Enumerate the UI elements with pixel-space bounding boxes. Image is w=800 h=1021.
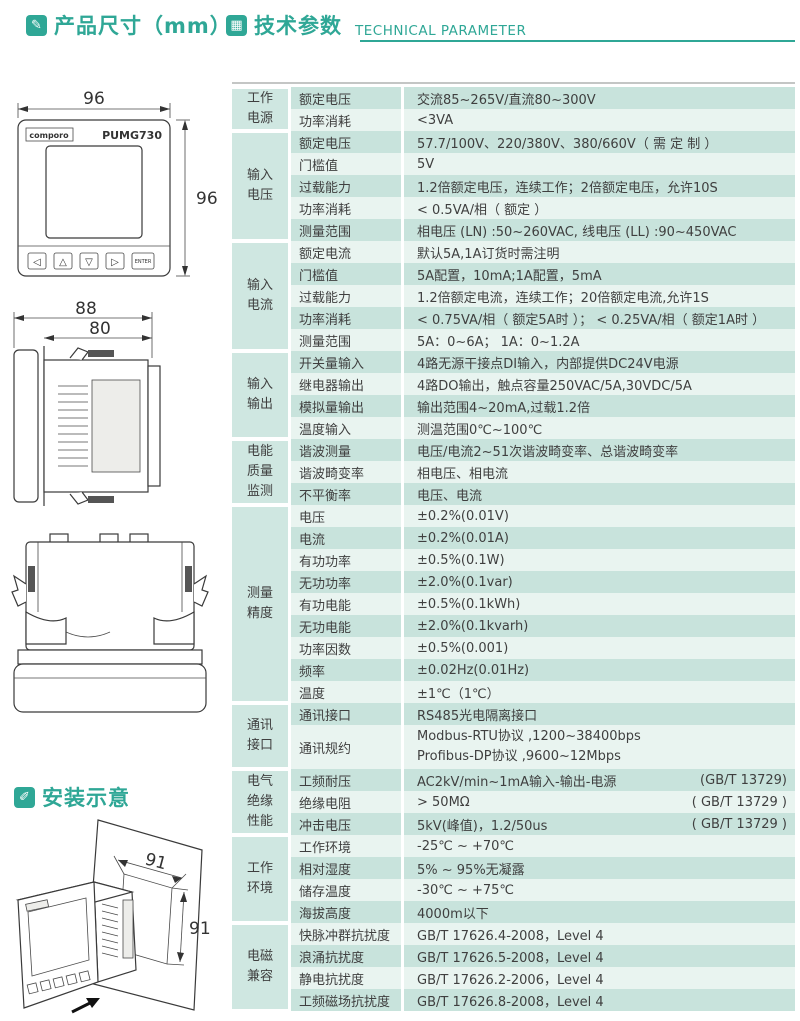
param-value: ±0.02Hz(0.01Hz) — [404, 659, 795, 681]
param-value: 4路无源干接点DI输入，内部提供DC24V电源 — [404, 351, 795, 373]
param-name: 功率消耗 — [291, 109, 401, 131]
param-name: 电压 — [291, 505, 401, 527]
group-cell: 工作环境 — [232, 835, 288, 923]
front-view-diagram: 96 comporo PUMG730 ◁ △ ▽ ▷ ENTER 96 — [0, 88, 228, 296]
group-label: 输入电流 — [247, 276, 274, 316]
header-rule — [360, 40, 795, 42]
param-name: 无功电能 — [291, 615, 401, 637]
param-value: 5% ~ 95%无凝露 — [404, 857, 795, 879]
param-value: ±2.0%(0.1kvarh) — [404, 615, 795, 637]
group-cell: 通讯接口 — [232, 703, 288, 769]
param-name: 工作环境 — [291, 835, 401, 857]
param-value: 相电压、相电流 — [404, 461, 795, 483]
param-value: ±0.5%(0.1kWh) — [404, 593, 795, 615]
param-value: GB/T 17626.4-2008，Level 4 — [404, 923, 795, 945]
param-value: 4路DO输出，触点容量250VAC/5A,30VDC/5A — [404, 373, 795, 395]
section-title: 技术参数 — [254, 10, 342, 40]
param-name: 冲击电压 — [291, 813, 401, 835]
param-value: ±0.2%(0.01A) — [404, 527, 795, 549]
param-value: 5kV(峰值)，1.2/50us( GB/T 13729 ) — [404, 813, 795, 835]
param-name: 海拔高度 — [291, 901, 401, 923]
table-body: 工作电源额定电压交流85~265V/直流80~300V功率消耗<3VA输入电压额… — [232, 87, 795, 1011]
param-name: 温度输入 — [291, 417, 401, 439]
param-value: ±1℃（1℃） — [404, 681, 795, 703]
table-group: 输入电压额定电压57.7/100V、220/380V、380/660V（ 需 定… — [232, 131, 795, 241]
param-note: ( GB/T 13729 ) — [692, 817, 795, 832]
key-enter-label: ENTER — [135, 259, 152, 265]
table-group: 工作环境工作环境-25℃ ~ +70℃相对湿度5% ~ 95%无凝露储存温度-3… — [232, 835, 795, 923]
param-name: 绝缘电阻 — [291, 791, 401, 813]
parameters-icon: ▦ — [226, 15, 247, 36]
param-value: GB/T 17626.5-2008，Level 4 — [404, 945, 795, 967]
table-group: 工作电源额定电压交流85~265V/直流80~300V功率消耗<3VA — [232, 87, 795, 131]
section-product-dimensions: ✎ 产品尺寸（mm） — [26, 10, 232, 40]
table-group: 电气绝缘性能工频耐压AC2kV/min~1mA输入-输出-电源(GB/T 137… — [232, 769, 795, 835]
param-name: 有功功率 — [291, 549, 401, 571]
section-installation: ✐ 安装示意 — [14, 782, 130, 812]
param-value: -30℃ ~ +75℃ — [404, 879, 795, 901]
group-label: 工作环境 — [247, 859, 274, 899]
param-name: 快脉冲群抗扰度 — [291, 923, 401, 945]
model-label: PUMG730 — [102, 129, 162, 142]
param-value: 交流85~265V/直流80~300V — [404, 87, 795, 109]
group-label: 输入输出 — [247, 375, 274, 415]
param-value: GB/T 17626.8-2008，Level 4 — [404, 989, 795, 1011]
group-cell: 输入电压 — [232, 131, 288, 241]
param-value: < 0.75VA/相（ 额定5A时 ）； < 0.25VA/相（ 额定1A时 ） — [404, 307, 795, 329]
param-name: 温度 — [291, 681, 401, 703]
group-cell: 工作电源 — [232, 87, 288, 131]
dim-cutout-height: 91 — [189, 919, 211, 939]
param-name: 储存温度 — [291, 879, 401, 901]
param-value: < 0.5VA/相（ 额定 ） — [404, 197, 795, 219]
group-cell: 测量精度 — [232, 505, 288, 703]
param-value: 输出范围4~20mA,过载1.2倍 — [404, 395, 795, 417]
group-label: 测量精度 — [247, 584, 274, 624]
param-value: 4000m以下 — [404, 901, 795, 923]
param-name: 无功功率 — [291, 571, 401, 593]
dim-side-body: 80 — [89, 319, 111, 339]
param-name: 模拟量输出 — [291, 395, 401, 417]
table-group: 输入电流额定电流默认5A,1A订货时需注明门槛值5A配置，10mA;1A配置，5… — [232, 241, 795, 351]
dim-front-width: 96 — [83, 89, 105, 109]
side-view-diagram: 88 80 — [0, 300, 228, 515]
param-name: 功率消耗 — [291, 197, 401, 219]
param-name: 额定电压 — [291, 87, 401, 109]
param-name: 测量范围 — [291, 329, 401, 351]
param-name: 功率因数 — [291, 637, 401, 659]
param-name: 静电抗扰度 — [291, 967, 401, 989]
dim-side-total: 88 — [75, 300, 97, 319]
param-name: 浪涌抗扰度 — [291, 945, 401, 967]
param-name: 有功电能 — [291, 593, 401, 615]
rear-view-diagram — [2, 520, 226, 745]
table-group: 测量精度电压±0.2%(0.01V)电流±0.2%(0.01A)有功功率±0.5… — [232, 505, 795, 703]
param-value: 1.2倍额定电流，连续工作；20倍额定电流,允许1S — [404, 285, 795, 307]
param-value: AC2kV/min~1mA输入-输出-电源(GB/T 13729) — [404, 769, 795, 791]
group-cell: 电气绝缘性能 — [232, 769, 288, 835]
param-name: 开关量输入 — [291, 351, 401, 373]
technical-parameter-table: 工作电源额定电压交流85~265V/直流80~300V功率消耗<3VA输入电压额… — [232, 82, 795, 1011]
param-name: 工频磁场抗扰度 — [291, 989, 401, 1011]
table-group: 电磁兼容快脉冲群抗扰度GB/T 17626.4-2008，Level 4浪涌抗扰… — [232, 923, 795, 1011]
param-name: 谐波畸变率 — [291, 461, 401, 483]
param-value: 默认5A,1A订货时需注明 — [404, 241, 795, 263]
key-left-icon: ◁ — [33, 257, 41, 268]
param-name: 过载能力 — [291, 175, 401, 197]
dim-front-height: 96 — [196, 189, 218, 209]
section-title: 安装示意 — [42, 782, 130, 812]
table-group: 电能质量监测谐波测量电压/电流2~51次谐波畸变率、总谐波畸变率谐波畸变率相电压… — [232, 439, 795, 505]
section-technical-parameter: ▦ 技术参数 TECHNICAL PARAMETER — [226, 10, 526, 40]
param-value: 电压、电流 — [404, 483, 795, 505]
param-note: ( GB/T 13729 ) — [692, 795, 795, 810]
param-value: 1.2倍额定电压，连续工作；2倍额定电压，允许10S — [404, 175, 795, 197]
table-group: 输入输出开关量输入4路无源干接点DI输入，内部提供DC24V电源继电器输出4路D… — [232, 351, 795, 439]
param-name: 功率消耗 — [291, 307, 401, 329]
param-name: 谐波测量 — [291, 439, 401, 461]
param-name: 电流 — [291, 527, 401, 549]
param-value: 5A配置，10mA;1A配置，5mA — [404, 263, 795, 285]
brand-label: comporo — [29, 131, 69, 140]
table-group: 通讯接口通讯接口RS485光电隔离接口通讯规约Modbus-RTU协议 ,120… — [232, 703, 795, 769]
key-down-icon: ▽ — [85, 257, 93, 268]
param-name: 额定电流 — [291, 241, 401, 263]
section-title: 产品尺寸（mm） — [54, 10, 232, 40]
param-value: > 50MΩ( GB/T 13729 ) — [404, 791, 795, 813]
param-value: GB/T 17626.2-2006，Level 4 — [404, 967, 795, 989]
section-subtitle: TECHNICAL PARAMETER — [355, 23, 526, 40]
param-value: Modbus-RTU协议 ,1200~38400bpsProfibus-DP协议… — [404, 725, 795, 769]
table-top-border — [232, 82, 795, 84]
param-value: ±0.5%(0.001) — [404, 637, 795, 659]
param-name: 频率 — [291, 659, 401, 681]
group-label: 工作电源 — [247, 89, 274, 129]
insert-arrow-icon — [72, 998, 100, 1012]
installation-diagram: 91 91 — [6, 812, 226, 1018]
ruler-icon: ✎ — [26, 15, 47, 36]
param-name: 门槛值 — [291, 263, 401, 285]
group-cell: 输入输出 — [232, 351, 288, 439]
param-name: 不平衡率 — [291, 483, 401, 505]
param-value: RS485光电隔离接口 — [404, 703, 795, 725]
param-value: 5A：0~6A； 1A：0~1.2A — [404, 329, 795, 351]
param-name: 门槛值 — [291, 153, 401, 175]
param-name: 测量范围 — [291, 219, 401, 241]
param-name: 额定电压 — [291, 131, 401, 153]
param-value: ±2.0%(0.1var) — [404, 571, 795, 593]
param-name: 通讯规约 — [291, 725, 401, 769]
key-right-icon: ▷ — [111, 257, 119, 268]
param-value: ±0.2%(0.01V) — [404, 505, 795, 527]
param-name: 相对湿度 — [291, 857, 401, 879]
param-value: <3VA — [404, 109, 795, 131]
param-value: -25℃ ~ +70℃ — [404, 835, 795, 857]
param-name: 过载能力 — [291, 285, 401, 307]
param-value: 相电压 (LN) :50~260VAC, 线电压 (LL) :90~450VAC — [404, 219, 795, 241]
group-label: 输入电压 — [247, 166, 274, 206]
param-value: 5V — [404, 153, 795, 175]
param-name: 工频耐压 — [291, 769, 401, 791]
param-note: (GB/T 13729) — [700, 773, 795, 788]
param-value: 测温范围0℃~100℃ — [404, 417, 795, 439]
group-label: 电能质量监测 — [247, 442, 274, 502]
wrench-icon: ✐ — [14, 787, 35, 808]
param-name: 继电器输出 — [291, 373, 401, 395]
param-name: 通讯接口 — [291, 703, 401, 725]
key-up-icon: △ — [59, 257, 67, 268]
group-cell: 电磁兼容 — [232, 923, 288, 1011]
param-value: ±0.5%(0.1W) — [404, 549, 795, 571]
group-label: 电气绝缘性能 — [247, 772, 274, 832]
param-value: 57.7/100V、220/380V、380/660V（ 需 定 制 ） — [404, 131, 795, 153]
group-label: 通讯接口 — [247, 716, 274, 756]
group-cell: 输入电流 — [232, 241, 288, 351]
group-label: 电磁兼容 — [247, 947, 274, 987]
group-cell: 电能质量监测 — [232, 439, 288, 505]
param-value: 电压/电流2~51次谐波畸变率、总谐波畸变率 — [404, 439, 795, 461]
